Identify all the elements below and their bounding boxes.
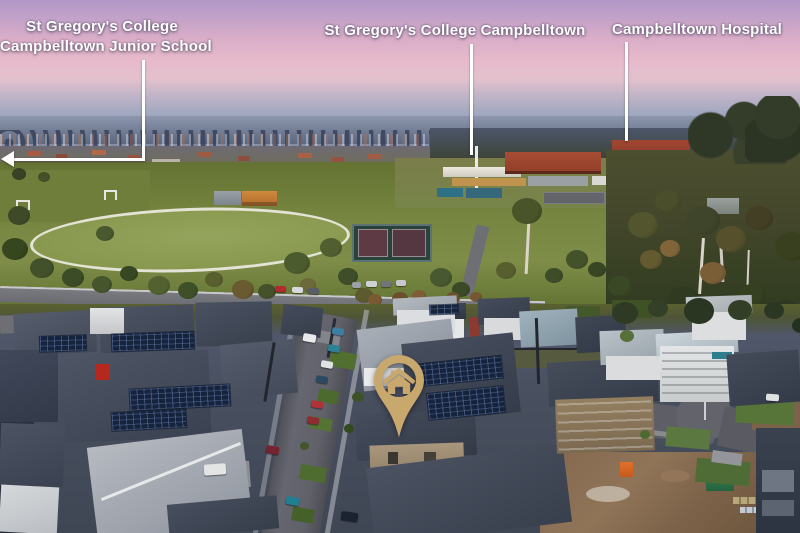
aerial-photo: St Gregory's College Campbelltown Junior… (0, 0, 800, 533)
label-hospital-line1: Campbelltown Hospital (601, 20, 793, 40)
leader-line-hospital (625, 42, 628, 141)
leader-line-junior-school-vertical (142, 60, 145, 159)
pin-body (374, 355, 424, 438)
label-hospital: Campbelltown Hospital (601, 20, 793, 40)
house-icon (383, 368, 416, 395)
label-college-line1: St Gregory's College Campbelltown (324, 21, 586, 41)
leader-line-junior-school-horizontal (10, 158, 145, 161)
label-junior-school-line1: St Gregory's College (0, 17, 204, 37)
property-location-pin[interactable] (371, 354, 427, 440)
annotations: St Gregory's College Campbelltown Junior… (0, 0, 800, 533)
label-junior-school-line2: Campbelltown Junior School (0, 37, 204, 57)
label-junior-school: St Gregory's College Campbelltown Junior… (0, 17, 204, 57)
leader-line-college (470, 44, 473, 155)
left-arrow-icon (1, 151, 14, 167)
label-college: St Gregory's College Campbelltown (324, 21, 586, 41)
